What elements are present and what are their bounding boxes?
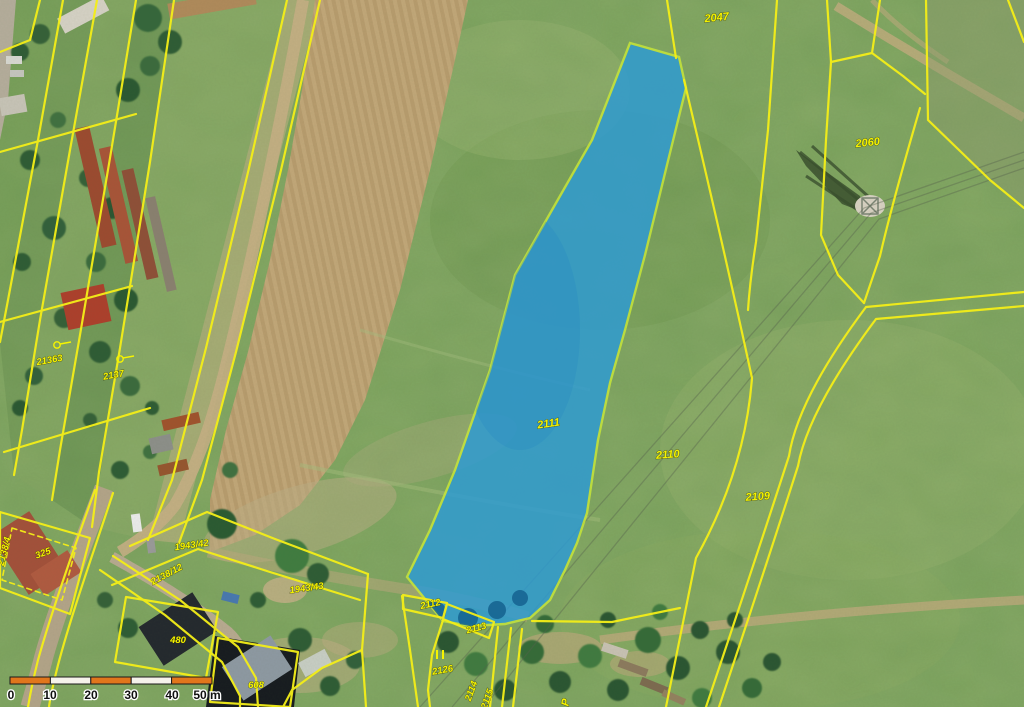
house-number-480: 480 [169,635,187,646]
scale-tick-20: 20 [84,688,98,702]
parcel-label-2110: 2110 [655,448,681,462]
scale-tick-30: 30 [124,688,138,702]
house-number-608: 608 [248,680,265,691]
scale-tick-40: 40 [165,688,179,702]
cadastral-map-svg[interactable]: 2047 2060 2111 2110 2109 21363 2137 1943… [0,0,1024,707]
map-canvas[interactable]: 2047 2060 2111 2110 2109 21363 2137 1943… [0,0,1024,707]
scale-tick-10: 10 [43,688,57,702]
parcel-label-2109: 2109 [744,490,771,504]
scale-tick-0: 0 [8,688,15,702]
scale-tick-50m: 50 m [193,688,220,702]
